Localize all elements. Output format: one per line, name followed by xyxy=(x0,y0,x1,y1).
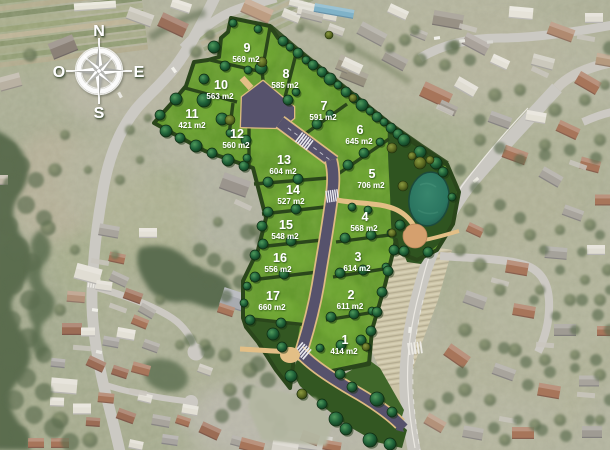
svg-text:568 m2: 568 m2 xyxy=(350,224,378,233)
svg-text:585 m2: 585 m2 xyxy=(271,81,299,90)
svg-text:17: 17 xyxy=(266,289,280,303)
svg-text:563 m2: 563 m2 xyxy=(206,92,234,101)
svg-text:5: 5 xyxy=(369,167,376,181)
svg-text:9: 9 xyxy=(244,41,251,55)
svg-text:2: 2 xyxy=(348,288,355,302)
svg-text:15: 15 xyxy=(279,218,293,232)
svg-text:604 m2: 604 m2 xyxy=(269,167,297,176)
svg-text:7: 7 xyxy=(321,99,328,113)
svg-text:3: 3 xyxy=(355,250,362,264)
svg-text:591 m2: 591 m2 xyxy=(309,113,337,122)
svg-text:O: O xyxy=(53,64,65,81)
svg-text:421 m2: 421 m2 xyxy=(178,121,206,130)
svg-text:10: 10 xyxy=(214,78,228,92)
svg-text:13: 13 xyxy=(277,153,291,167)
svg-text:660 m2: 660 m2 xyxy=(258,303,286,312)
svg-text:12: 12 xyxy=(230,127,244,141)
svg-text:8: 8 xyxy=(283,67,290,81)
svg-text:6: 6 xyxy=(357,123,364,137)
svg-text:706 m2: 706 m2 xyxy=(357,181,385,190)
svg-text:16: 16 xyxy=(273,251,287,265)
svg-text:14: 14 xyxy=(286,183,300,197)
svg-text:560 m2: 560 m2 xyxy=(222,141,250,150)
svg-text:645 m2: 645 m2 xyxy=(345,137,373,146)
svg-text:11: 11 xyxy=(185,107,198,121)
svg-text:527 m2: 527 m2 xyxy=(277,197,305,206)
svg-text:N: N xyxy=(93,23,105,40)
svg-text:569 m2: 569 m2 xyxy=(232,55,260,64)
svg-text:S: S xyxy=(94,105,105,122)
svg-text:548 m2: 548 m2 xyxy=(271,232,299,241)
svg-text:614 m2: 614 m2 xyxy=(343,264,371,273)
svg-text:1: 1 xyxy=(342,333,349,347)
svg-text:414 m2: 414 m2 xyxy=(330,347,358,356)
svg-text:556 m2: 556 m2 xyxy=(264,265,292,274)
svg-text:4: 4 xyxy=(362,210,369,224)
svg-text:611 m2: 611 m2 xyxy=(337,302,364,311)
svg-text:E: E xyxy=(134,64,145,81)
